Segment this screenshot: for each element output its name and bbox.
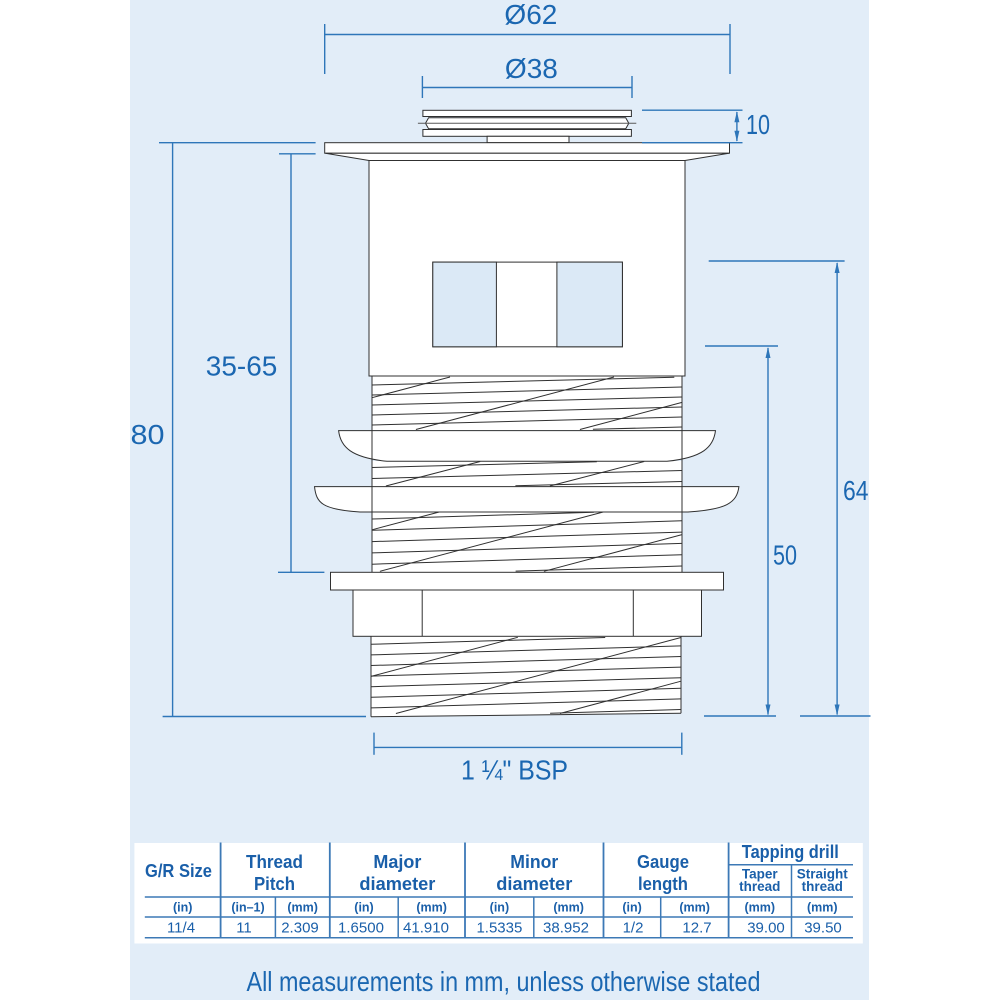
svg-text:Gauge: Gauge xyxy=(637,852,689,872)
svg-text:Ø62: Ø62 xyxy=(504,0,557,30)
svg-text:(mm): (mm) xyxy=(679,901,710,915)
svg-text:41.910: 41.910 xyxy=(403,920,449,937)
svg-text:80: 80 xyxy=(131,419,165,450)
svg-text:35-65: 35-65 xyxy=(206,351,277,382)
svg-text:64: 64 xyxy=(843,475,869,506)
svg-text:thread: thread xyxy=(802,879,843,894)
svg-text:(in–1): (in–1) xyxy=(231,901,264,915)
svg-text:Minor: Minor xyxy=(510,852,558,872)
svg-text:Major: Major xyxy=(373,852,421,872)
svg-text:Tapping drill: Tapping drill xyxy=(742,842,839,862)
svg-text:thread: thread xyxy=(739,879,780,894)
svg-text:(in): (in) xyxy=(490,901,509,915)
svg-text:50: 50 xyxy=(773,540,797,571)
svg-text:1 ¼" BSP: 1 ¼" BSP xyxy=(461,755,568,786)
svg-text:Thread: Thread xyxy=(246,852,303,872)
svg-text:length: length xyxy=(638,874,688,894)
svg-text:1.5335: 1.5335 xyxy=(476,920,522,937)
svg-text:11/4: 11/4 xyxy=(167,920,195,937)
svg-text:(in): (in) xyxy=(354,901,373,915)
svg-text:G/R Size: G/R Size xyxy=(145,861,212,881)
svg-text:Pitch: Pitch xyxy=(254,874,295,894)
svg-text:2.309: 2.309 xyxy=(281,920,319,937)
svg-text:39.50: 39.50 xyxy=(804,920,842,937)
svg-text:1.6500: 1.6500 xyxy=(338,920,384,937)
svg-text:39.00: 39.00 xyxy=(747,920,785,937)
svg-text:(mm): (mm) xyxy=(553,901,584,915)
svg-text:(in): (in) xyxy=(622,901,641,915)
svg-text:(mm): (mm) xyxy=(807,901,838,915)
svg-text:(mm): (mm) xyxy=(416,901,447,915)
svg-text:11: 11 xyxy=(236,920,252,937)
svg-text:diameter: diameter xyxy=(496,874,572,894)
svg-text:diameter: diameter xyxy=(359,874,435,894)
svg-text:1/2: 1/2 xyxy=(623,920,644,937)
svg-text:38.952: 38.952 xyxy=(543,920,589,937)
svg-text:12.7: 12.7 xyxy=(682,920,711,937)
svg-text:10: 10 xyxy=(746,109,770,140)
svg-text:All measurements in mm, unless: All measurements in mm, unless otherwise… xyxy=(247,966,761,997)
svg-text:(mm): (mm) xyxy=(745,901,776,915)
svg-text:(mm): (mm) xyxy=(287,901,318,915)
svg-text:(in): (in) xyxy=(173,901,192,915)
svg-text:Ø38: Ø38 xyxy=(505,53,558,84)
